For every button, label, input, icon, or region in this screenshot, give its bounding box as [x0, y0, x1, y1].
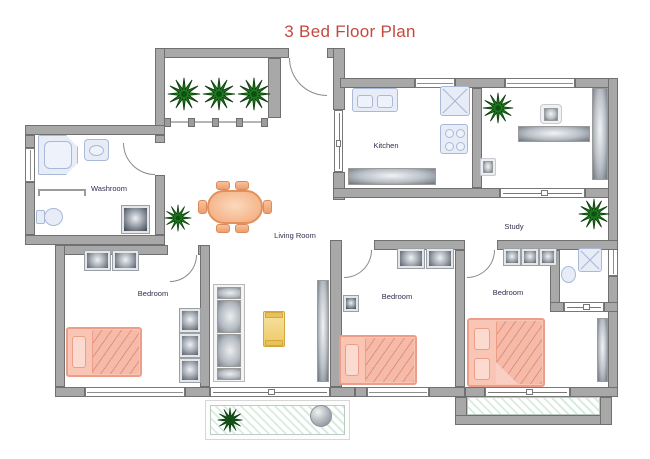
shelf-unit — [180, 359, 200, 382]
wall-bedroom2-right — [455, 250, 465, 387]
room-label-living: Living Room — [263, 231, 327, 240]
wall-bottom-a — [55, 387, 85, 397]
plant-icon — [164, 204, 192, 232]
railing-post — [164, 118, 171, 127]
wall-balcony-right — [600, 397, 612, 425]
railing-post — [212, 118, 219, 127]
dresser — [427, 249, 453, 268]
wall-bedroom1-right — [200, 245, 210, 387]
window-bedroom2 — [367, 387, 429, 397]
balcony-floor — [467, 397, 600, 415]
page-title: 3 Bed Floor Plan — [100, 22, 600, 42]
sliding-door-ensuite — [564, 302, 604, 312]
ensuite-sink — [561, 266, 576, 283]
plant-icon — [482, 92, 514, 124]
plant-icon — [237, 77, 271, 111]
toilet — [36, 206, 64, 228]
dining-chair — [235, 181, 249, 190]
room-label-bedroom3: Bedroom — [480, 288, 536, 297]
wall-right-b — [608, 276, 618, 388]
railing-post — [188, 118, 195, 127]
window-bedroom1 — [85, 387, 185, 397]
dining-table — [207, 190, 263, 224]
dresser — [85, 251, 110, 270]
dining-chair — [263, 200, 272, 214]
nightstand — [344, 296, 358, 311]
wall-bottom-g — [570, 387, 618, 397]
cabinet-unit — [504, 249, 520, 265]
dresser — [398, 249, 424, 268]
railing-post — [236, 118, 243, 127]
bed — [66, 327, 142, 377]
sliding-door-entrance — [210, 387, 330, 397]
door-bedroom1 — [170, 255, 197, 282]
wall-washroom-left-a — [25, 135, 35, 148]
window-study — [505, 78, 575, 88]
wall-washroom-right-a — [155, 135, 165, 143]
bed — [339, 335, 417, 385]
wall-ensuite-bottom-b — [604, 302, 618, 312]
wardrobe — [597, 318, 608, 382]
shelf-unit — [180, 334, 200, 357]
dining-chair — [235, 224, 249, 233]
towel-rail — [38, 189, 86, 196]
door-living-top — [289, 58, 327, 96]
cabinet-unit — [522, 249, 538, 265]
tv-cabinet — [317, 280, 329, 382]
kitchen-double-sink — [352, 88, 398, 112]
room-label-washroom: Washroom — [81, 184, 137, 193]
wall-ensuite-bottom-a — [550, 302, 564, 312]
window-washroom — [25, 148, 35, 182]
wall-washroom-left-b — [25, 182, 35, 235]
wall-bottom-d — [355, 387, 367, 397]
cooktop — [440, 124, 468, 154]
door-washroom — [123, 143, 155, 175]
wall-bottom-c — [330, 387, 355, 397]
wall-balcony-bottom — [455, 415, 612, 425]
wall-washroom-bottom — [25, 235, 165, 245]
plant-icon — [217, 407, 243, 433]
wall-kitchen-top-a — [340, 78, 415, 88]
sliding-door-study — [500, 188, 585, 198]
wall-bottom-b — [185, 387, 210, 397]
window-ensuite — [608, 248, 618, 276]
wall-bottom-e — [429, 387, 465, 397]
wall-kitchen-bottom — [333, 188, 500, 198]
washing-machine — [122, 206, 149, 233]
floor-plan-canvas: 3 Bed Floor Plan — [0, 0, 650, 459]
wall-bedroom1-left — [55, 245, 65, 387]
room-label-bedroom1: Bedroom — [125, 289, 181, 298]
sofa — [213, 284, 245, 382]
cabinet-unit — [540, 249, 556, 265]
door-bedroom3 — [467, 250, 495, 278]
sliding-door-balcony — [485, 387, 570, 397]
dining-chair — [216, 181, 230, 190]
double-bed — [467, 318, 545, 387]
plant-icon — [578, 198, 610, 230]
coffee-table — [263, 311, 285, 347]
plant-icon — [202, 77, 236, 111]
railing-post — [261, 118, 268, 127]
bookshelf — [592, 88, 608, 180]
room-label-study: Study — [486, 222, 542, 231]
dining-chair — [216, 224, 230, 233]
wall-bedroom1-top-a — [55, 245, 168, 255]
plant-icon — [167, 77, 201, 111]
dining-chair — [198, 200, 207, 214]
desk-chair — [540, 104, 562, 124]
wall-bottom-f — [465, 387, 485, 397]
wall-living-top-a — [155, 48, 289, 58]
washroom-sink — [84, 139, 109, 161]
sliding-door-kitchen — [334, 110, 343, 172]
wall-washroom-top — [25, 125, 165, 135]
room-label-bedroom2: Bedroom — [369, 292, 425, 301]
shower-tray — [38, 135, 78, 175]
desk — [518, 126, 590, 142]
shelf-unit — [180, 309, 200, 332]
dresser — [113, 251, 138, 270]
room-label-kitchen: Kitchen — [358, 141, 414, 150]
ensuite-shower — [578, 248, 602, 272]
study-cabinet — [480, 158, 496, 176]
garden-sphere — [310, 405, 332, 427]
kitchen-corner-unit — [440, 86, 470, 116]
door-bedroom2 — [344, 250, 372, 278]
kitchen-counter — [348, 168, 436, 185]
